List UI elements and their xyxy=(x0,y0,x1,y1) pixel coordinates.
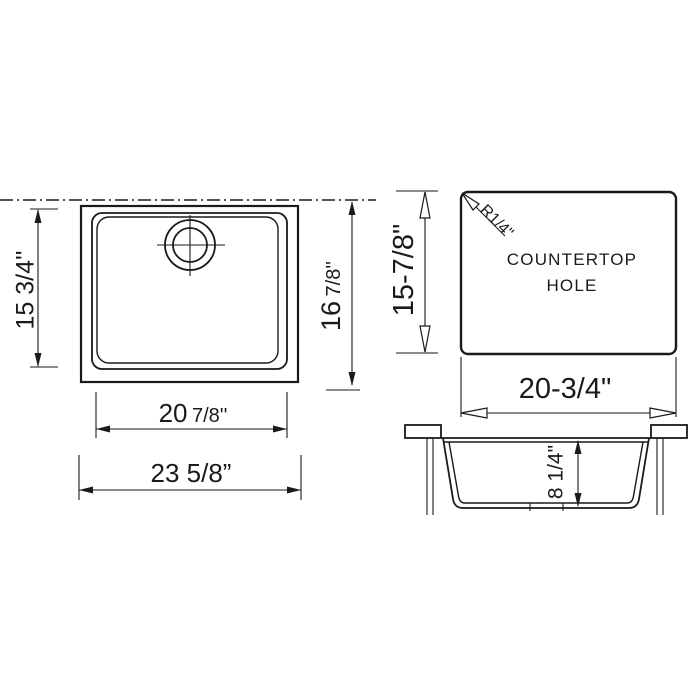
dim-inner-width-label: 20 7/8'' xyxy=(113,399,273,427)
dim-depth-lines xyxy=(575,440,582,507)
arrow-right-icon xyxy=(650,408,676,418)
countertop-hole-label-line2: HOLE xyxy=(492,277,652,295)
arrow-up-icon xyxy=(349,201,356,215)
arrow-down-icon xyxy=(349,372,356,386)
drawing-linework xyxy=(0,0,700,700)
sink-bowl-bottom-edge xyxy=(97,217,278,363)
arrow-down-icon xyxy=(420,326,430,352)
dim-inner-width-frac: 7/8'' xyxy=(192,405,227,427)
countertop-right-block xyxy=(651,425,687,438)
dim-outer-height-frac: 7/8'' xyxy=(323,261,345,296)
arrow-up-icon xyxy=(35,209,42,223)
arrow-down-icon xyxy=(575,493,582,507)
arrow-down-icon xyxy=(35,353,42,367)
arrow-right-icon xyxy=(287,487,301,494)
dim-depth-label: 8 1/4" xyxy=(545,425,569,520)
arrow-up-icon xyxy=(420,192,430,218)
dim-inner-height-label: 15 3/4'' xyxy=(12,233,40,348)
arrow-left-icon xyxy=(461,408,487,418)
sink-top-view xyxy=(81,206,298,382)
sink-technical-drawing: 15 3/4'' 16 7/8'' 20 7/8'' 23 5/8” COUNT… xyxy=(0,0,700,700)
arrow-left-icon xyxy=(79,487,93,494)
arrow-right-icon xyxy=(273,426,287,433)
dim-outer-height-space xyxy=(327,296,344,300)
drain-icon xyxy=(157,215,225,276)
dim-outer-height-label: 16 7/8'' xyxy=(317,236,345,356)
dim-outer-width-label: 23 5/8” xyxy=(111,460,271,486)
arrow-left-icon xyxy=(96,426,110,433)
dim-outer-height-main: 16 xyxy=(316,301,346,331)
dim-inner-width-main: 20 xyxy=(159,398,188,428)
dim-hole-height-label: 15-7/8" xyxy=(390,210,418,330)
countertop-left-block xyxy=(405,425,441,438)
dim-hole-width-label: 20-3/4" xyxy=(485,375,645,403)
